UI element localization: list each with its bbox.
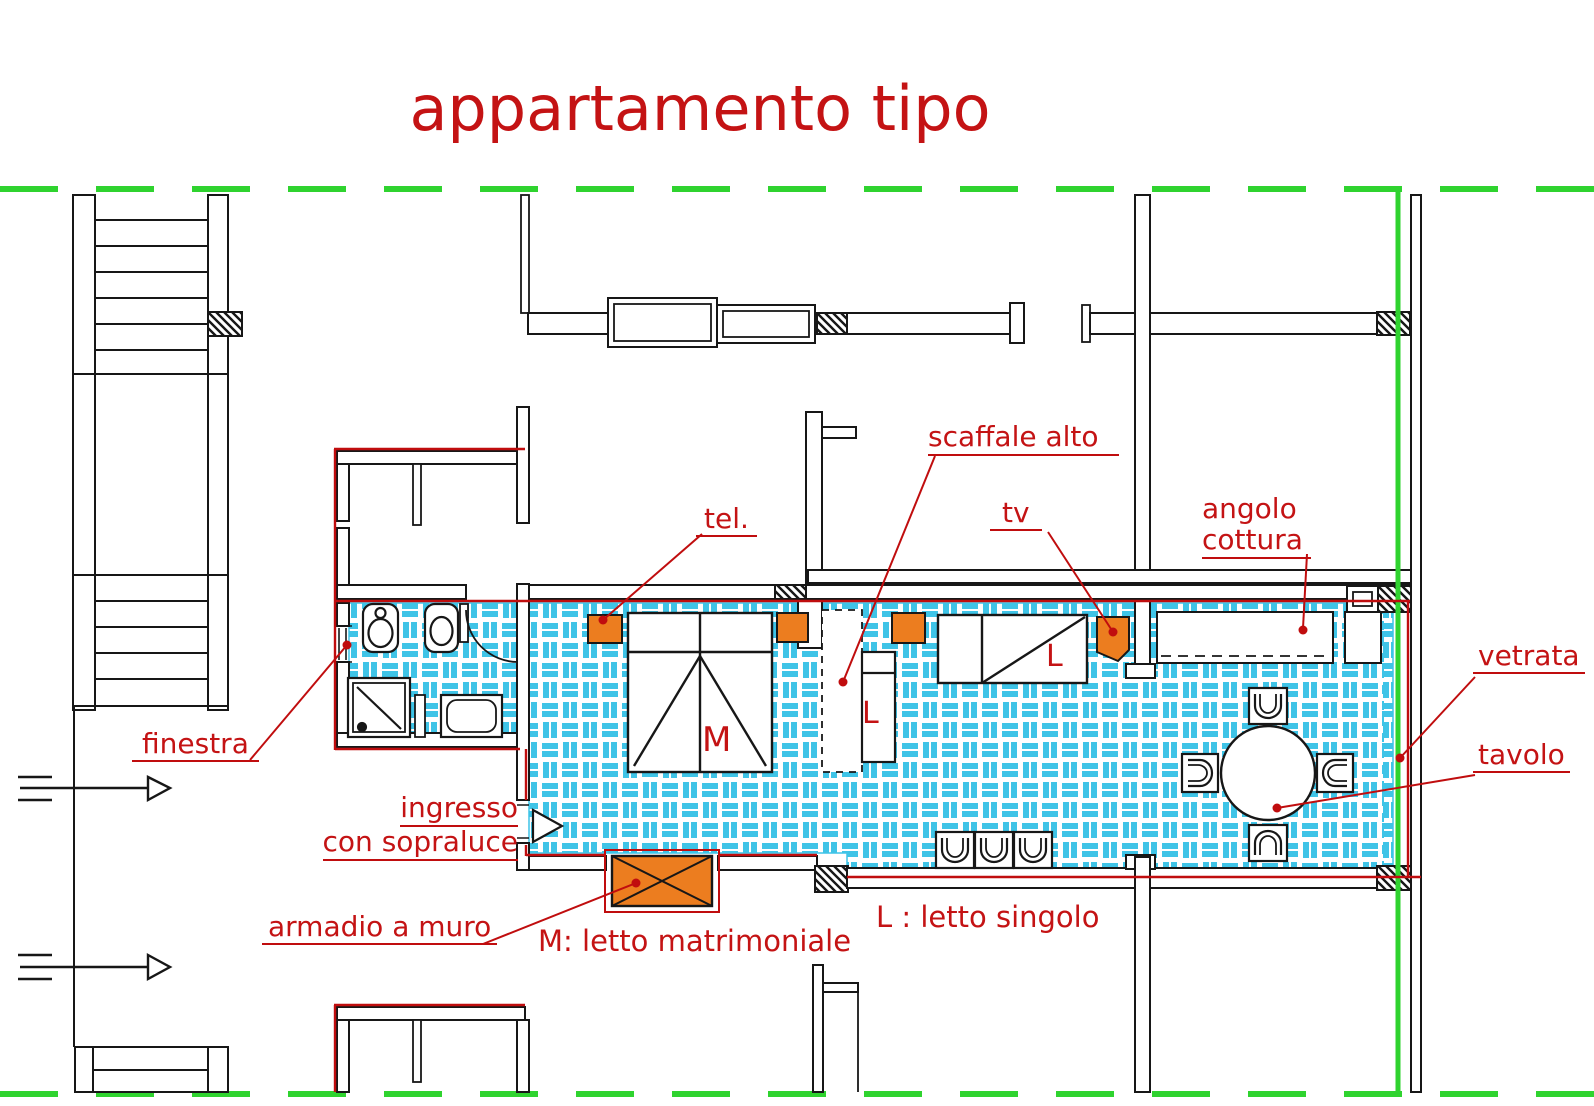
label-armadio-a-muro: armadio a muro (262, 912, 497, 945)
dining-table (1221, 726, 1315, 820)
label-scaffale-alto: scaffale alto (928, 422, 1119, 456)
page-title: appartamento tipo (390, 72, 1010, 145)
legend-double-bed: M: letto matrimoniale (538, 926, 851, 958)
tv-icon (1097, 617, 1129, 661)
label-tavolo: tavolo (1473, 740, 1570, 773)
shower-icon (348, 678, 410, 737)
washbasin-icon (441, 695, 502, 737)
toilet-icon (363, 604, 398, 652)
vestibule-walls (337, 407, 529, 603)
label-tel: tel. (696, 504, 757, 537)
label-ingresso: ingresso con sopraluce (322, 793, 518, 861)
nightstand (777, 613, 808, 642)
label-finestra: finestra (132, 729, 259, 762)
lower-vestibule-walls (337, 1007, 529, 1092)
wardrobe-icon (605, 850, 719, 912)
double-bed (628, 613, 772, 772)
entrance-wall (517, 584, 529, 870)
staircase (73, 195, 242, 1092)
label-tv: tv (990, 498, 1042, 531)
bidet-icon (425, 604, 458, 652)
entry-arrow-icon (18, 777, 170, 979)
bed-letter-m: M (702, 722, 731, 759)
bed-letter-l1: L (862, 697, 879, 730)
kitchen-counter (1157, 612, 1381, 663)
label-vetrata: vetrata (1473, 641, 1585, 674)
wall-chairs (936, 832, 1052, 868)
floor-plan-canvas: appartamento tipo finestra ingresso con … (0, 0, 1594, 1106)
nightstand (892, 613, 925, 643)
tall-shelf (822, 610, 862, 772)
single-bed-2 (938, 615, 1087, 683)
label-angolo-cottura: angolo cottura (1202, 494, 1311, 559)
bed-letter-l2: L (1046, 640, 1063, 673)
legend-single-bed: L : letto singolo (876, 902, 1099, 934)
